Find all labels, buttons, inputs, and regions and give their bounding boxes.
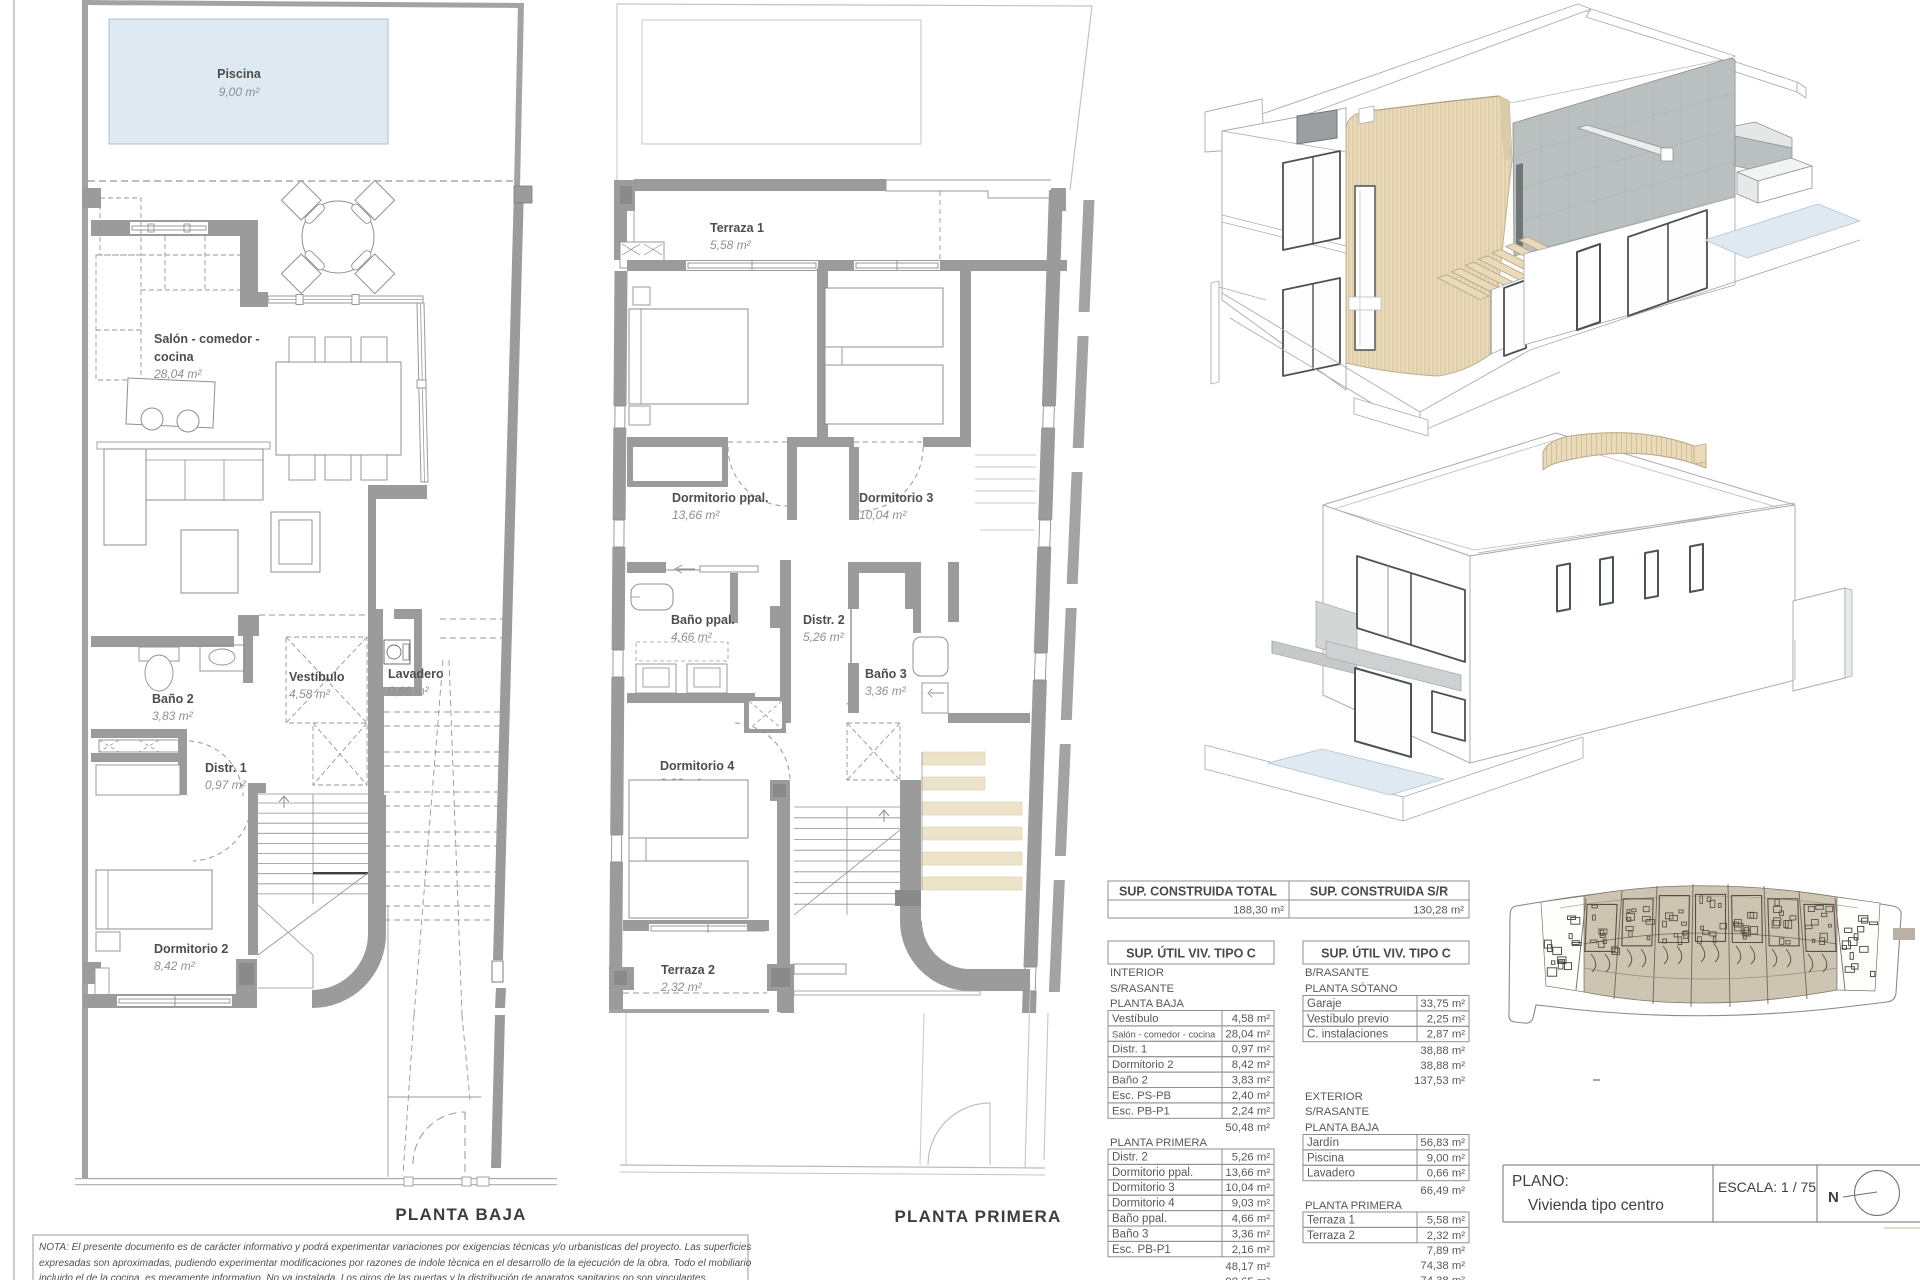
svg-text:Terraza 2: Terraza 2 bbox=[1307, 1230, 1355, 1242]
svg-text:PLANO:: PLANO: bbox=[1512, 1173, 1569, 1190]
svg-text:98,65 m²: 98,65 m² bbox=[1225, 1276, 1270, 1280]
svg-text:3,83 m²: 3,83 m² bbox=[1232, 1075, 1271, 1087]
svg-text:3,36 m²: 3,36 m² bbox=[865, 684, 907, 698]
svg-text:Dormitorio 2: Dormitorio 2 bbox=[1112, 1059, 1174, 1071]
svg-text:66,49 m²: 66,49 m² bbox=[1420, 1185, 1465, 1197]
svg-text:cocina: cocina bbox=[154, 350, 195, 364]
svg-text:0,66 m²: 0,66 m² bbox=[1427, 1168, 1466, 1180]
svg-text:38,88 m²: 38,88 m² bbox=[1420, 1045, 1465, 1057]
svg-text:2,87 m²: 2,87 m² bbox=[1427, 1029, 1466, 1041]
svg-text:188,30 m²: 188,30 m² bbox=[1233, 905, 1284, 917]
svg-text:4,58 m²: 4,58 m² bbox=[289, 687, 331, 701]
svg-text:NOTA: El presente documento es: NOTA: El presente documento es de caráct… bbox=[39, 1242, 751, 1253]
svg-text:N: N bbox=[1828, 1189, 1839, 1206]
svg-text:Vestíbulo: Vestíbulo bbox=[1112, 1013, 1158, 1025]
svg-text:S/RASANTE: S/RASANTE bbox=[1305, 1106, 1369, 1118]
svg-text:Dormitorio 3: Dormitorio 3 bbox=[859, 491, 933, 505]
svg-text:Terraza 1: Terraza 1 bbox=[710, 221, 764, 235]
svg-text:B/RASANTE: B/RASANTE bbox=[1305, 967, 1369, 979]
svg-text:4,66 m²: 4,66 m² bbox=[1232, 1213, 1271, 1225]
svg-text:56,83 m²: 56,83 m² bbox=[1420, 1137, 1465, 1149]
svg-text:2,32 m²: 2,32 m² bbox=[1427, 1230, 1466, 1242]
svg-text:130,28 m²: 130,28 m² bbox=[1413, 905, 1464, 917]
svg-text:13,66 m²: 13,66 m² bbox=[1225, 1167, 1270, 1179]
svg-text:28,04 m²: 28,04 m² bbox=[1225, 1028, 1270, 1040]
svg-text:Terraza 2: Terraza 2 bbox=[661, 963, 715, 977]
svg-text:incluido el de la cocina, es m: incluido el de la cocina, es meramente i… bbox=[39, 1273, 708, 1280]
svg-text:74,38 m²: 74,38 m² bbox=[1420, 1260, 1465, 1272]
svg-text:5,58 m²: 5,58 m² bbox=[710, 238, 752, 252]
svg-text:2,32 m²: 2,32 m² bbox=[660, 980, 703, 994]
svg-text:74,38 m²: 74,38 m² bbox=[1420, 1275, 1465, 1280]
svg-text:10,04 m²: 10,04 m² bbox=[1225, 1182, 1270, 1194]
svg-text:ESCALA: 1 / 75: ESCALA: 1 / 75 bbox=[1718, 1179, 1816, 1195]
svg-text:2,24 m²: 2,24 m² bbox=[1232, 1105, 1271, 1117]
svg-text:8,42 m²: 8,42 m² bbox=[1232, 1059, 1271, 1071]
svg-text:Distr. 1: Distr. 1 bbox=[205, 761, 247, 775]
svg-text:38,88 m²: 38,88 m² bbox=[1420, 1060, 1465, 1072]
svg-text:9,00 m²: 9,00 m² bbox=[1427, 1152, 1466, 1164]
svg-text:9,00 m²: 9,00 m² bbox=[219, 85, 261, 99]
svg-text:Dormitorio 2: Dormitorio 2 bbox=[154, 942, 228, 956]
svg-text:4,58 m²: 4,58 m² bbox=[1232, 1013, 1271, 1025]
svg-text:Baño 3: Baño 3 bbox=[1112, 1228, 1148, 1240]
svg-text:PLANTA BAJA: PLANTA BAJA bbox=[1110, 998, 1184, 1010]
svg-text:Distr. 1: Distr. 1 bbox=[1112, 1044, 1147, 1056]
svg-text:Vestíbulo: Vestíbulo bbox=[289, 670, 345, 684]
svg-text:Dormitorio 3: Dormitorio 3 bbox=[1112, 1182, 1175, 1194]
svg-text:Baño 2: Baño 2 bbox=[1112, 1075, 1148, 1087]
svg-text:0,66 m²: 0,66 m² bbox=[388, 684, 430, 698]
svg-text:Piscina: Piscina bbox=[1307, 1152, 1345, 1164]
svg-text:Distr. 2: Distr. 2 bbox=[803, 613, 845, 627]
svg-text:7,89 m²: 7,89 m² bbox=[1427, 1245, 1466, 1257]
svg-text:Baño ppal.: Baño ppal. bbox=[1112, 1213, 1167, 1225]
svg-text:0,97 m²: 0,97 m² bbox=[1232, 1044, 1271, 1056]
svg-text:PLANTA BAJA: PLANTA BAJA bbox=[395, 1205, 526, 1224]
svg-text:Dormitorio ppal.: Dormitorio ppal. bbox=[672, 491, 769, 505]
svg-text:137,53 m²: 137,53 m² bbox=[1414, 1075, 1465, 1087]
svg-text:5,26 m²: 5,26 m² bbox=[1232, 1151, 1271, 1163]
svg-text:expresadas son aproximadas, pu: expresadas son aproximadas, pudiendo exp… bbox=[39, 1258, 752, 1269]
svg-text:Garaje: Garaje bbox=[1307, 998, 1342, 1010]
svg-text:2,16 m²: 2,16 m² bbox=[1232, 1244, 1271, 1256]
svg-text:Baño 3: Baño 3 bbox=[865, 667, 907, 681]
svg-text:Salón - comedor - cocina: Salón - comedor - cocina bbox=[1112, 1029, 1216, 1039]
svg-text:Esc. PB-P1: Esc. PB-P1 bbox=[1112, 1105, 1170, 1117]
svg-text:8,42 m²: 8,42 m² bbox=[154, 959, 196, 973]
svg-text:Baño ppal.: Baño ppal. bbox=[671, 613, 735, 627]
svg-text:Piscina: Piscina bbox=[217, 67, 262, 81]
svg-text:PLANTA PRIMERA: PLANTA PRIMERA bbox=[1110, 1137, 1208, 1149]
svg-text:Jardín: Jardín bbox=[1307, 1137, 1339, 1149]
svg-text:Distr. 2: Distr. 2 bbox=[1112, 1151, 1148, 1163]
svg-text:2,40 m²: 2,40 m² bbox=[1232, 1090, 1271, 1102]
svg-text:PLANTA SÓTANO: PLANTA SÓTANO bbox=[1305, 982, 1398, 995]
svg-text:28,04 m²: 28,04 m² bbox=[153, 367, 202, 381]
svg-text:Dormitorio 4: Dormitorio 4 bbox=[660, 759, 734, 773]
svg-text:Dormitorio 4: Dormitorio 4 bbox=[1112, 1198, 1175, 1210]
svg-text:SUP. ÚTIL VIV. TIPO C: SUP. ÚTIL VIV. TIPO C bbox=[1126, 946, 1256, 961]
svg-text:0,97 m²: 0,97 m² bbox=[205, 778, 247, 792]
svg-text:4,66 m²: 4,66 m² bbox=[671, 630, 713, 644]
svg-text:33,75 m²: 33,75 m² bbox=[1420, 998, 1465, 1010]
svg-text:SUP. CONSTRUIDA TOTAL: SUP. CONSTRUIDA TOTAL bbox=[1119, 885, 1277, 899]
svg-text:C. instalaciones: C. instalaciones bbox=[1307, 1029, 1388, 1041]
svg-text:5,26 m²: 5,26 m² bbox=[803, 630, 845, 644]
svg-text:50,48 m²: 50,48 m² bbox=[1225, 1122, 1270, 1134]
svg-text:INTERIOR: INTERIOR bbox=[1110, 967, 1164, 979]
svg-text:SUP. ÚTIL VIV. TIPO C: SUP. ÚTIL VIV. TIPO C bbox=[1321, 946, 1451, 961]
svg-text:S/RASANTE: S/RASANTE bbox=[1110, 983, 1174, 995]
svg-text:13,66 m²: 13,66 m² bbox=[672, 508, 720, 522]
svg-text:EXTERIOR: EXTERIOR bbox=[1305, 1091, 1363, 1103]
svg-text:Esc. PB-P1: Esc. PB-P1 bbox=[1112, 1244, 1171, 1256]
svg-text:9,03 m²: 9,03 m² bbox=[1232, 1198, 1271, 1210]
svg-text:SUP. CONSTRUIDA S/R: SUP. CONSTRUIDA S/R bbox=[1310, 885, 1448, 899]
svg-text:Salón - comedor -: Salón - comedor - bbox=[154, 332, 260, 346]
svg-text:3,36 m²: 3,36 m² bbox=[1232, 1228, 1271, 1240]
svg-text:48,17 m²: 48,17 m² bbox=[1225, 1261, 1270, 1273]
svg-text:10,04 m²: 10,04 m² bbox=[859, 508, 907, 522]
svg-text:Vestíbulo previo: Vestíbulo previo bbox=[1307, 1013, 1389, 1025]
svg-text:3,83 m²: 3,83 m² bbox=[152, 709, 194, 723]
svg-text:PLANTA PRIMERA: PLANTA PRIMERA bbox=[1305, 1200, 1403, 1212]
svg-text:Esc. PS-PB: Esc. PS-PB bbox=[1112, 1090, 1171, 1102]
svg-text:Terraza 1: Terraza 1 bbox=[1307, 1214, 1355, 1226]
svg-text:PLANTA PRIMERA: PLANTA PRIMERA bbox=[895, 1207, 1062, 1226]
svg-text:2,25 m²: 2,25 m² bbox=[1427, 1013, 1466, 1025]
svg-text:5,58 m²: 5,58 m² bbox=[1427, 1214, 1466, 1226]
svg-text:PLANTA BAJA: PLANTA BAJA bbox=[1305, 1122, 1379, 1134]
svg-text:Lavadero: Lavadero bbox=[388, 667, 444, 681]
svg-text:Vivienda tipo centro: Vivienda tipo centro bbox=[1528, 1197, 1664, 1214]
svg-text:Lavadero: Lavadero bbox=[1307, 1168, 1355, 1180]
svg-text:Baño 2: Baño 2 bbox=[152, 692, 194, 706]
svg-text:Dormitorio ppal.: Dormitorio ppal. bbox=[1112, 1167, 1193, 1179]
